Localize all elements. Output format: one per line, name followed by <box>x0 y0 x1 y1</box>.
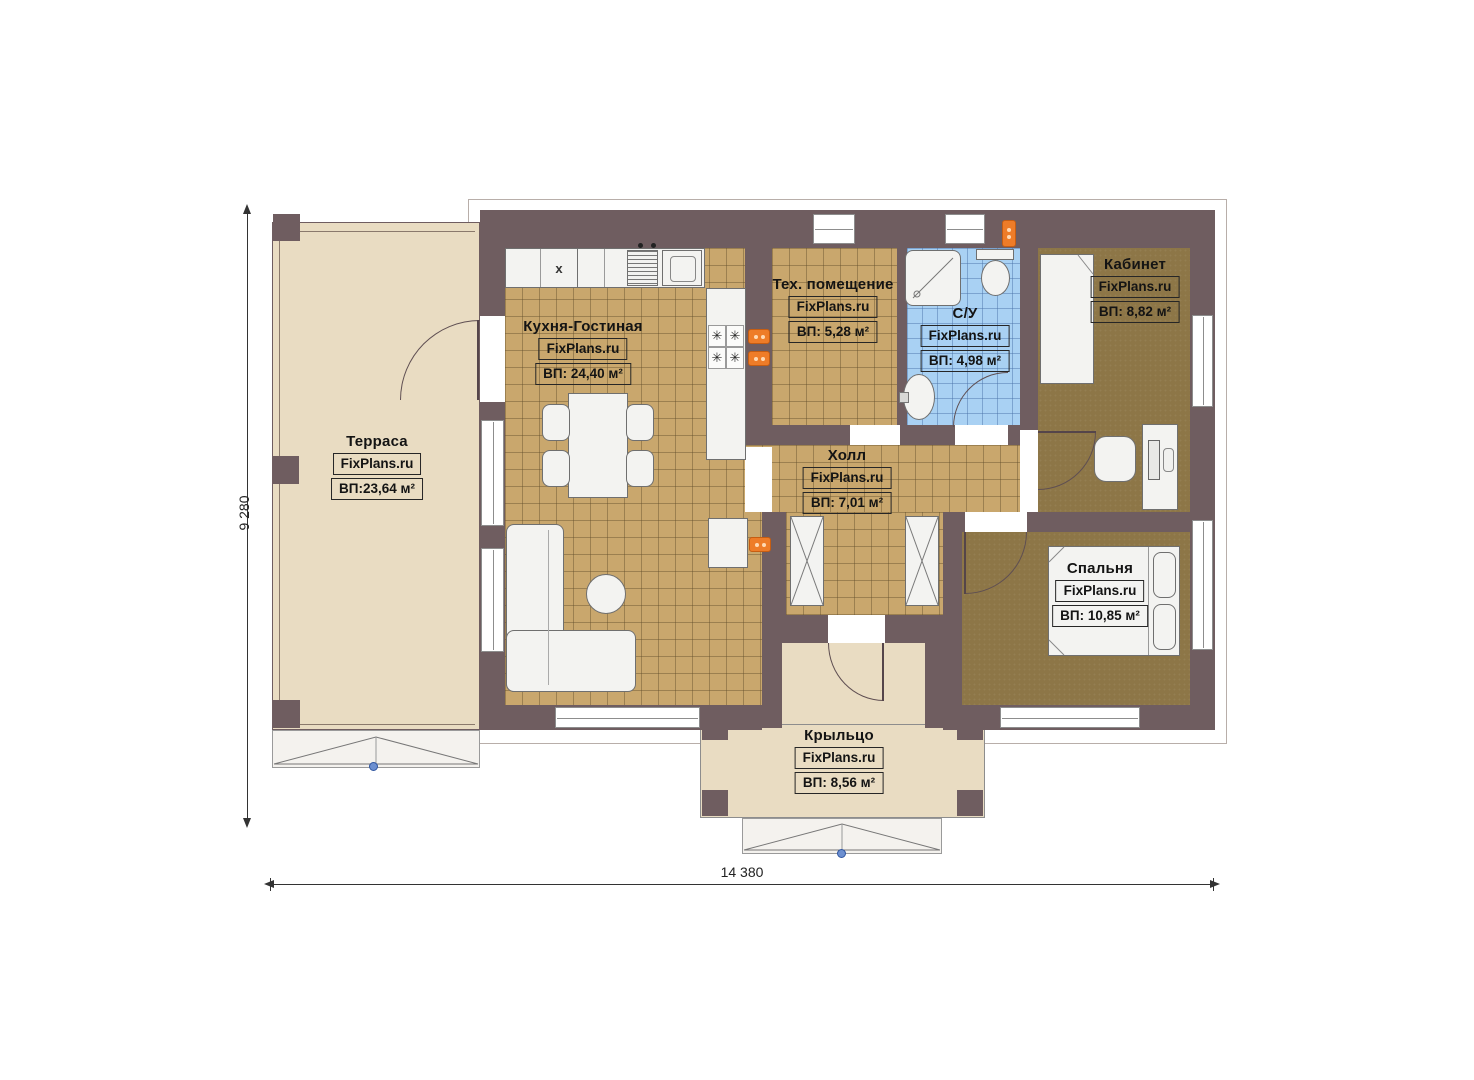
window-top-2 <box>945 214 985 244</box>
room-label-terrace: Терраса FixPlans.ru ВП:23,64 м² <box>331 433 423 500</box>
shower-diagonal <box>905 250 961 306</box>
wall-entry-south-right <box>885 615 943 643</box>
area-label: ВП: 4,98 м² <box>921 350 1009 372</box>
porch-post <box>957 724 983 740</box>
terrace-post <box>272 456 299 484</box>
door-opening-office <box>1020 430 1038 512</box>
stove-burner-icon: ✳ <box>726 347 744 369</box>
window-left-living-1 <box>481 420 504 526</box>
threshold-kitchen-hall <box>745 447 772 512</box>
dining-chair <box>626 450 654 487</box>
office-chair <box>1094 436 1136 482</box>
wall-recess-left <box>762 643 782 728</box>
door-leaf-bedroom <box>964 532 966 594</box>
stove-burner-icon: ✳ <box>726 325 744 347</box>
watermark-label: FixPlans.ru <box>1056 580 1145 602</box>
sink-basin <box>670 256 696 282</box>
toilet-bowl <box>981 260 1010 296</box>
room-name: Холл <box>828 447 866 464</box>
room-label-office: Кабинет FixPlans.ru ВП: 8,82 м² <box>1091 256 1180 323</box>
porch-post <box>957 790 983 816</box>
wall-right <box>1190 210 1215 730</box>
kitchen-fridge <box>627 250 658 286</box>
dimension-value-horizontal: 14 380 <box>721 864 764 880</box>
kitchen-cabinet-x: x <box>540 248 578 288</box>
bathroom-sink-tap <box>899 392 909 403</box>
steps-handle-dot <box>369 762 378 771</box>
area-label: ВП: 8,56 м² <box>795 772 883 794</box>
room-label-kitchen-living: Кухня-Гостиная FixPlans.ru ВП: 24,40 м² <box>523 318 642 385</box>
heater-bathroom <box>1002 220 1016 247</box>
office-bed-fold <box>1040 254 1094 384</box>
sofa-horizontal <box>506 630 636 692</box>
fridge-dot <box>651 243 656 248</box>
terrace-post <box>273 700 300 728</box>
sofa-cushion-line <box>548 530 549 685</box>
window-right-bedroom <box>1192 520 1213 650</box>
room-name: Крыльцо <box>804 727 874 744</box>
wall-bedroom-west <box>943 532 962 705</box>
watermark-label: FixPlans.ru <box>1091 276 1180 298</box>
door-opening-tech <box>850 425 900 445</box>
porch-post <box>702 790 728 816</box>
dining-chair <box>626 404 654 441</box>
wardrobe-right-x <box>905 516 939 606</box>
area-label: ВП: 24,40 м² <box>535 363 631 385</box>
watermark-label: FixPlans.ru <box>333 453 422 475</box>
stove-burner-icons: ✳ ✳ ✳ ✳ <box>708 325 744 369</box>
wall-kitchen-tech <box>745 248 772 445</box>
door-opening-bathroom <box>955 425 1008 445</box>
steps-handle-dot <box>837 849 846 858</box>
watermark-label: FixPlans.ru <box>803 467 892 489</box>
kitchen-sink <box>662 250 702 286</box>
stove-burner-icon: ✳ <box>708 325 726 347</box>
room-label-tech: Тех. помещение FixPlans.ru ВП: 5,28 м² <box>772 276 893 343</box>
wall-recess-right <box>925 643 945 728</box>
door-leaf-office <box>1038 431 1096 433</box>
kitchen-counter-divider <box>540 249 541 287</box>
area-label: ВП: 5,28 м² <box>789 321 877 343</box>
room-label-bedroom: Спальня FixPlans.ru ВП: 10,85 м² <box>1052 560 1148 627</box>
dining-chair <box>542 450 570 487</box>
area-label: ВП:23,64 м² <box>331 478 423 500</box>
dimension-arrow-down <box>243 818 251 828</box>
door-opening-bedroom <box>965 512 1027 532</box>
fridge-dot <box>638 243 643 248</box>
area-label: ВП: 10,85 м² <box>1052 605 1148 627</box>
office-desk-keyboard <box>1163 448 1174 472</box>
dimension-arrow-up <box>243 204 251 214</box>
room-name: С/У <box>953 305 978 322</box>
room-name: Спальня <box>1067 560 1133 577</box>
window-right-office <box>1192 315 1213 407</box>
terrace-post <box>273 214 300 241</box>
cabinet-x-marker: x <box>555 261 562 276</box>
watermark-label: FixPlans.ru <box>539 338 628 360</box>
coffee-table <box>586 574 626 614</box>
dining-chair <box>542 404 570 441</box>
dimension-arrow-right <box>1210 880 1220 888</box>
area-label: ВП: 8,82 м² <box>1091 301 1179 323</box>
door-leaf-entrance <box>882 643 884 701</box>
door-opening-entrance <box>828 615 885 643</box>
kitchen-counter-side <box>706 288 746 460</box>
door-opening-terrace <box>480 316 505 402</box>
wall-bathroom-office <box>1020 248 1038 430</box>
room-label-bathroom: С/У FixPlans.ru ВП: 4,98 м² <box>921 305 1010 372</box>
room-name: Терраса <box>346 433 408 450</box>
porch-post <box>702 724 728 740</box>
watermark-label: FixPlans.ru <box>921 325 1010 347</box>
radiator-kitchen-2 <box>748 351 770 366</box>
toilet-tank <box>976 249 1014 260</box>
dimension-line-horizontal <box>270 884 1214 885</box>
watermark-label: FixPlans.ru <box>789 296 878 318</box>
wall-living-hall <box>762 512 786 615</box>
watermark-label: FixPlans.ru <box>795 747 884 769</box>
tv-bench <box>708 518 748 568</box>
stove-burner-icon: ✳ <box>708 347 726 369</box>
wall-entry-south-left <box>762 615 828 643</box>
radiator-living <box>749 537 771 552</box>
dining-table <box>568 393 628 498</box>
radiator-kitchen-1 <box>748 329 770 344</box>
room-name: Тех. помещение <box>772 276 893 293</box>
window-bottom-living <box>555 707 700 728</box>
wardrobe-left-x <box>790 516 824 606</box>
window-left-living-2 <box>481 548 504 652</box>
area-label: ВП: 7,01 м² <box>803 492 891 514</box>
room-name: Кабинет <box>1104 256 1166 273</box>
window-bottom-bedroom <box>1000 707 1140 728</box>
room-hall-corridor-floor <box>745 445 1038 512</box>
floor-plan: x ✳ ✳ ✳ ✳ <box>0 0 1474 1080</box>
office-desk-monitor <box>1148 440 1160 480</box>
door-leaf-terrace <box>477 320 479 400</box>
room-name: Кухня-Гостиная <box>523 318 642 335</box>
dimension-value-vertical: 9 280 <box>236 483 252 543</box>
dimension-arrow-left <box>264 880 274 888</box>
room-label-hall: Холл FixPlans.ru ВП: 7,01 м² <box>803 447 892 514</box>
room-label-porch: Крыльцо FixPlans.ru ВП: 8,56 м² <box>795 727 884 794</box>
window-top-1 <box>813 214 855 244</box>
kitchen-counter-divider <box>604 249 605 287</box>
